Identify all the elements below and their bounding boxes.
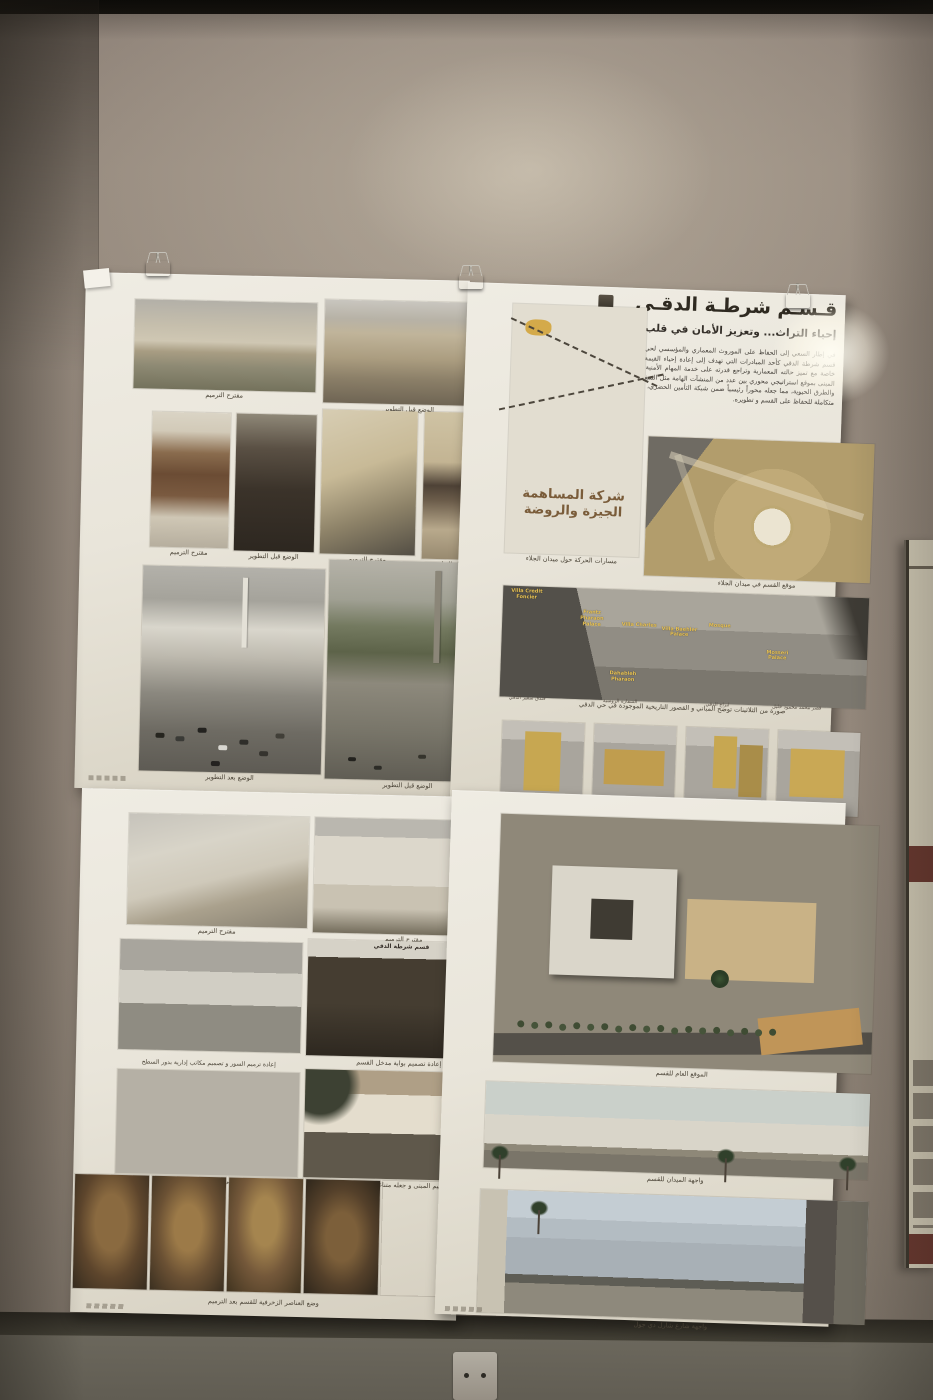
site-plan-tree-row [517, 1021, 524, 1028]
site-plan-station-building [549, 865, 677, 978]
photo-aerial-corner-render [320, 409, 418, 555]
ceiling-shadow [0, 0, 933, 14]
photo-side-street-render [127, 813, 309, 928]
figure-movement-map-sketch: شركة المساهمة الجيزة والروضة مسارات الحر… [504, 304, 647, 569]
poster-top-right: قـسـم شرطـة الدقـي إحياء التراث... وتعزي… [450, 282, 846, 815]
credit-mark [88, 775, 126, 781]
figure-doorway-before: الوضع قبل التطوير [233, 413, 316, 563]
pano-label: Mosque [700, 623, 740, 630]
photo-window-render [150, 412, 231, 549]
photo-ornament [304, 1179, 381, 1295]
site-plan-render [493, 814, 879, 1074]
elevation-render-square [484, 1081, 871, 1180]
credit-mark [86, 1303, 124, 1309]
palm-tree [488, 1142, 513, 1163]
photo-dark-doorway [234, 413, 317, 552]
figure-caption: الوضع قبل التطوير [233, 550, 313, 563]
photo-ornament [227, 1177, 304, 1293]
binder-clip [786, 293, 810, 308]
pano-label: Villa Credit Foncier [507, 589, 547, 602]
poster-bottom-right: الموقع العام للقسم واجهة الميدان للقسم و… [435, 790, 846, 1327]
adjacent-poster-thumbnails [913, 1060, 933, 1228]
binder-clip [459, 274, 483, 289]
site-plan-palm [711, 970, 730, 989]
figure-fence-restoration: إعادة ترميم السور و تصميم مكاتب إدارية ب… [118, 939, 303, 1069]
power-outlet [453, 1352, 497, 1400]
strip-photo-label: فندق سفير الدقي [463, 693, 545, 704]
figure-ornament-detail [227, 1177, 304, 1293]
adjacent-poster-rule [909, 566, 933, 569]
photo-ornament [150, 1176, 227, 1292]
map-sketch: شركة المساهمة الجيزة والروضة [505, 304, 648, 558]
wall-light-wash [300, 20, 760, 320]
figure-ornament-detail [150, 1176, 227, 1292]
figure-ornament-detail [73, 1174, 150, 1290]
figure-ornament-detail [304, 1179, 381, 1295]
poster-top-left: مقترح الترميم الوضع قبل التطوير مقترح ال… [74, 272, 470, 797]
figure-master-site-plan: الموقع العام للقسم [493, 814, 879, 1086]
exhibition-wall-photo: مقترح الترميم الوضع قبل التطوير مقترح ال… [0, 0, 933, 1400]
site-plan-plaza [685, 899, 816, 983]
bent-paper-corner [83, 268, 111, 288]
figure-square-elevation: واجهة الميدان للقسم [483, 1081, 870, 1192]
figure-galaa-square-aerial: موقع القسم في ميدان الجلاء [643, 436, 874, 594]
binder-clip [146, 261, 170, 276]
map-calligraphy: شركة المساهمة الجيزة والروضة [506, 485, 641, 522]
photo-building-render [133, 299, 317, 392]
map-highlight-blob [526, 319, 553, 336]
figure-villa-context: ترميم المبنى و جعله متناغم مع السياق [115, 1069, 300, 1189]
photo-roundabout-aerial [644, 436, 875, 583]
photo-street-intersection-after [139, 565, 326, 774]
elevation-render-street [477, 1189, 869, 1325]
pano-label: Villa Charles [619, 623, 659, 630]
palm-tree [526, 1198, 551, 1219]
photo-villa-dusk [115, 1069, 299, 1177]
figure-aerial-render: مقترح الترميم [319, 409, 417, 566]
figure-street-elevation: واجهة شارع شارل دي جول [476, 1189, 868, 1338]
figure-restoration-render: مقترح الترميم [133, 299, 317, 403]
credit-mark [445, 1306, 483, 1312]
adjacent-poster-maroon-band [909, 846, 933, 882]
poster-bottom-left: مقترح الترميم مقترح الترميم إعادة ترميم … [70, 788, 468, 1321]
pano-label: Frantz Pharaon Palace [572, 610, 613, 629]
photo-nile-panorama: Villa Credit Foncier Frantz Pharaon Pala… [500, 585, 870, 709]
pano-label: Mosseri Palace [757, 650, 797, 663]
figure-window-render: مقترح الترميم [150, 412, 231, 560]
figure-caption: مقترح الترميم [150, 547, 228, 560]
photo-ornament [73, 1174, 150, 1290]
pano-label: Dahabieh Pharaon [603, 671, 643, 684]
figure-restoration-render: مقترح الترميم [127, 813, 310, 939]
photo-fence-bw [118, 939, 302, 1053]
figure-street-after: الوضع بعد التطوير [138, 565, 325, 785]
pano-label: Villa Baehler Palace [659, 626, 699, 639]
adjacent-framed-poster [904, 540, 933, 1268]
palm-tree [836, 1154, 861, 1175]
figure-caption: إعادة ترميم السور و تصميم مكاتب إدارية ب… [118, 1057, 300, 1069]
palm-tree [714, 1146, 739, 1167]
adjacent-poster-maroon-band [909, 1234, 933, 1264]
